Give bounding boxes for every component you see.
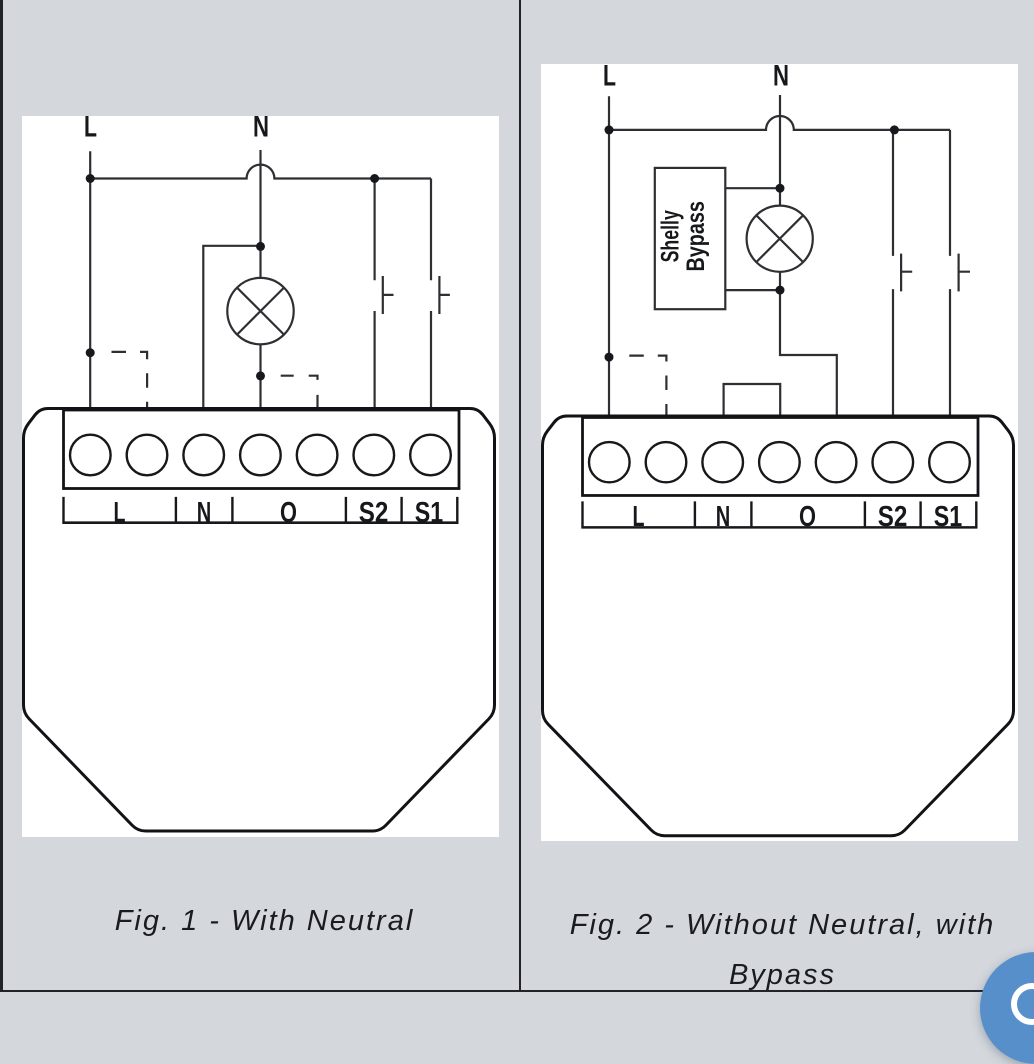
svg-text:N: N [716,501,731,533]
svg-text:L: L [84,116,97,144]
svg-text:L: L [633,501,645,533]
svg-text:Bypass: Bypass [682,201,710,271]
svg-text:S1: S1 [934,501,962,533]
svg-text:L: L [603,64,616,93]
svg-text:N: N [773,64,789,93]
svg-text:N: N [197,497,212,529]
svg-text:S2: S2 [878,501,908,533]
svg-text:O: O [280,497,297,529]
svg-text:S1: S1 [415,497,444,529]
svg-text:S2: S2 [359,497,389,529]
svg-text:L: L [114,497,126,529]
svg-text:N: N [253,116,269,144]
svg-text:Shelly: Shelly [657,210,685,262]
svg-text:O: O [799,501,816,533]
